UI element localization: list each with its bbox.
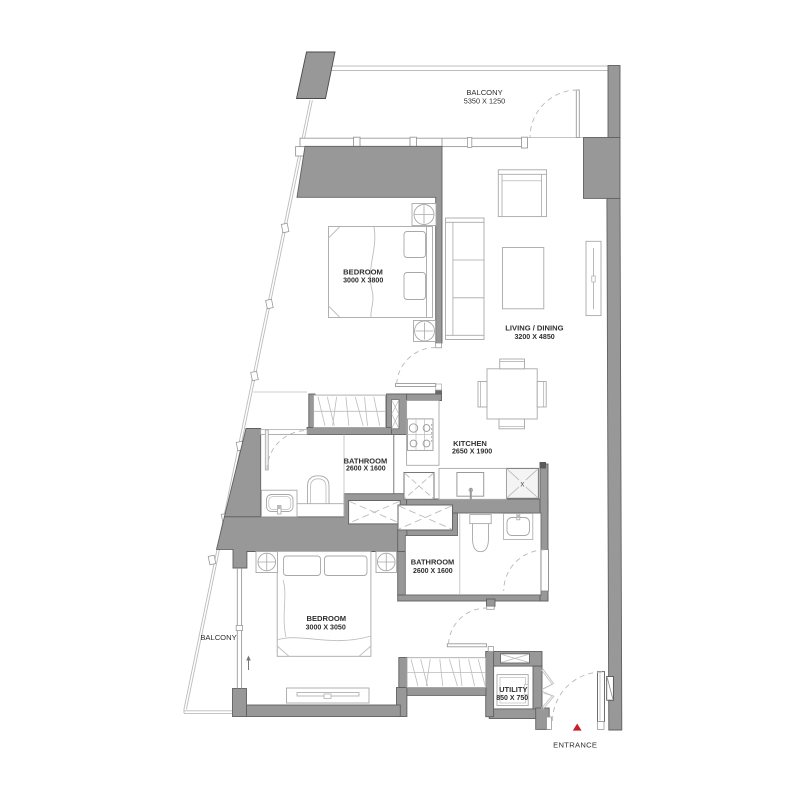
svg-text:3000 X 3050: 3000 X 3050 <box>306 623 346 631</box>
svg-text:LIVING / DINING: LIVING / DINING <box>505 324 563 333</box>
svg-text:BATHROOM: BATHROOM <box>344 457 388 466</box>
svg-text:5350 X 1250: 5350 X 1250 <box>464 97 505 106</box>
svg-text:3200 X 4850: 3200 X 4850 <box>514 333 554 341</box>
svg-text:2650 X 1900: 2650 X 1900 <box>452 448 492 456</box>
svg-text:2600 X 1600: 2600 X 1600 <box>346 466 386 473</box>
svg-text:3000 X 3800: 3000 X 3800 <box>343 277 383 285</box>
svg-text:BEDROOM: BEDROOM <box>306 614 346 623</box>
svg-text:x: x <box>520 480 524 489</box>
svg-text:2600 X 1600: 2600 X 1600 <box>413 568 453 575</box>
svg-text:BATHROOM: BATHROOM <box>411 557 455 566</box>
svg-text:850 X 750: 850 X 750 <box>496 695 528 702</box>
svg-text:BALCONY: BALCONY <box>200 633 236 642</box>
svg-text:ENTRANCE: ENTRANCE <box>553 740 597 749</box>
svg-text:BEDROOM: BEDROOM <box>343 267 383 276</box>
svg-text:UTILITY: UTILITY <box>499 685 527 694</box>
